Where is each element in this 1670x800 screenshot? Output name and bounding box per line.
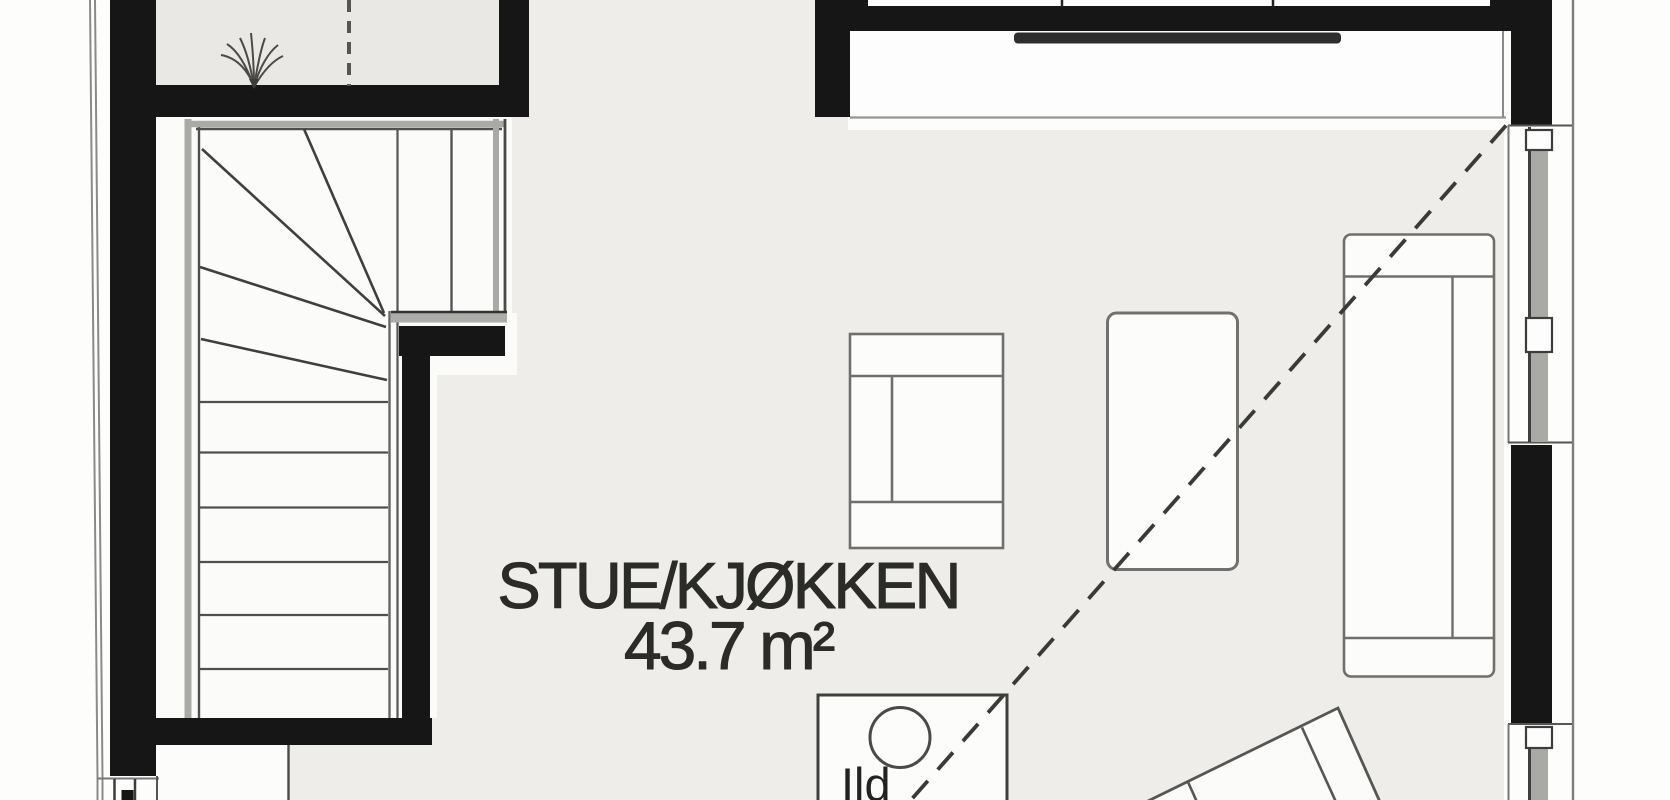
svg-text:43.7 m²: 43.7 m² xyxy=(624,608,835,684)
svg-text:Ild: Ild xyxy=(841,758,891,800)
